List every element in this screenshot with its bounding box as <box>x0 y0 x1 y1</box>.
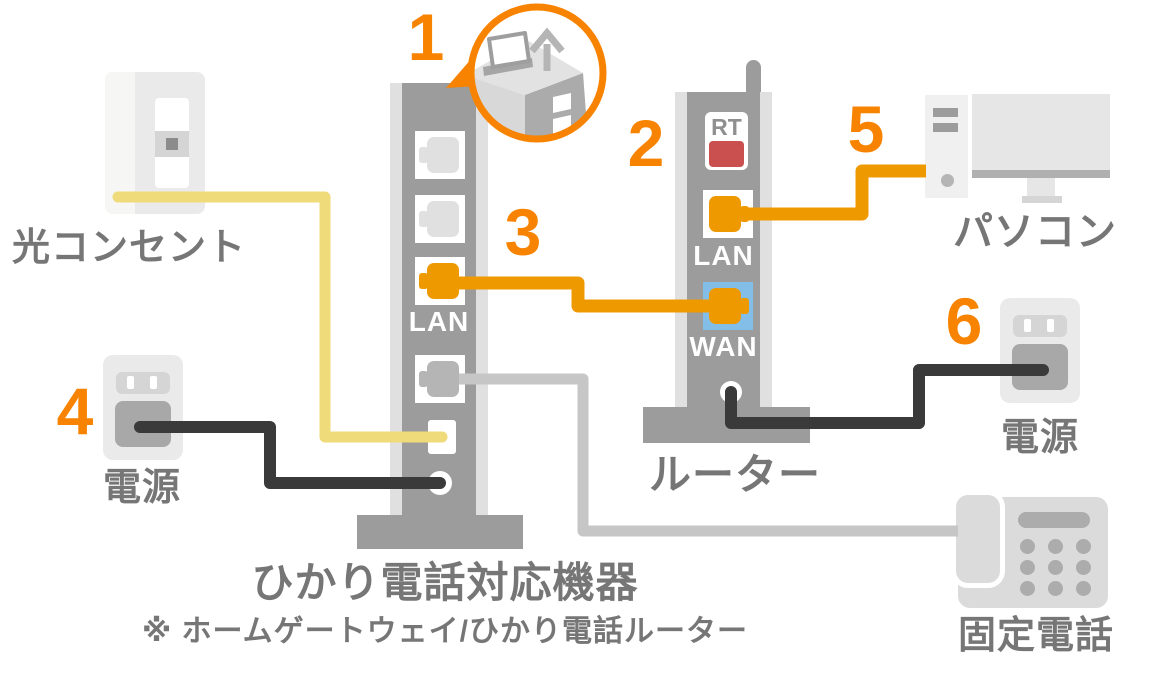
optical-outlet-label: 光コンセント <box>12 228 246 270</box>
hgw-phone-plug <box>427 361 459 397</box>
phone-label: 固定電話 <box>946 616 1126 658</box>
step-number-2: 2 <box>621 110 671 176</box>
step-number-6: 6 <box>939 288 989 354</box>
router-lan-plug <box>709 196 741 232</box>
lan-to-wan-cable <box>443 283 725 306</box>
device-title: ひかり電話対応機器 <box>145 560 745 606</box>
step-number-3: 3 <box>498 199 548 265</box>
hgw-plug-empty-1 <box>427 137 459 173</box>
step-number-4: 4 <box>50 378 100 444</box>
router-wan-plug <box>709 288 741 324</box>
step-number-1: 1 <box>401 4 451 70</box>
power-right-label: 電源 <box>995 418 1085 460</box>
pc-label: パソコン <box>950 210 1120 254</box>
step-number-5: 5 <box>841 96 891 162</box>
device-note: ※ ホームゲートウェイ/ひかり電話ルーター <box>95 615 795 648</box>
diagram-canvas: LAN RT LAN WAN <box>0 0 1160 687</box>
hgw-lan-plug <box>427 263 459 299</box>
lan-to-pc-cable <box>725 171 926 214</box>
router-label: ルーター <box>640 452 830 498</box>
power-left-label: 電源 <box>97 468 187 510</box>
hgw-plug-empty-2 <box>427 201 459 237</box>
router-power-cable <box>731 370 1043 423</box>
